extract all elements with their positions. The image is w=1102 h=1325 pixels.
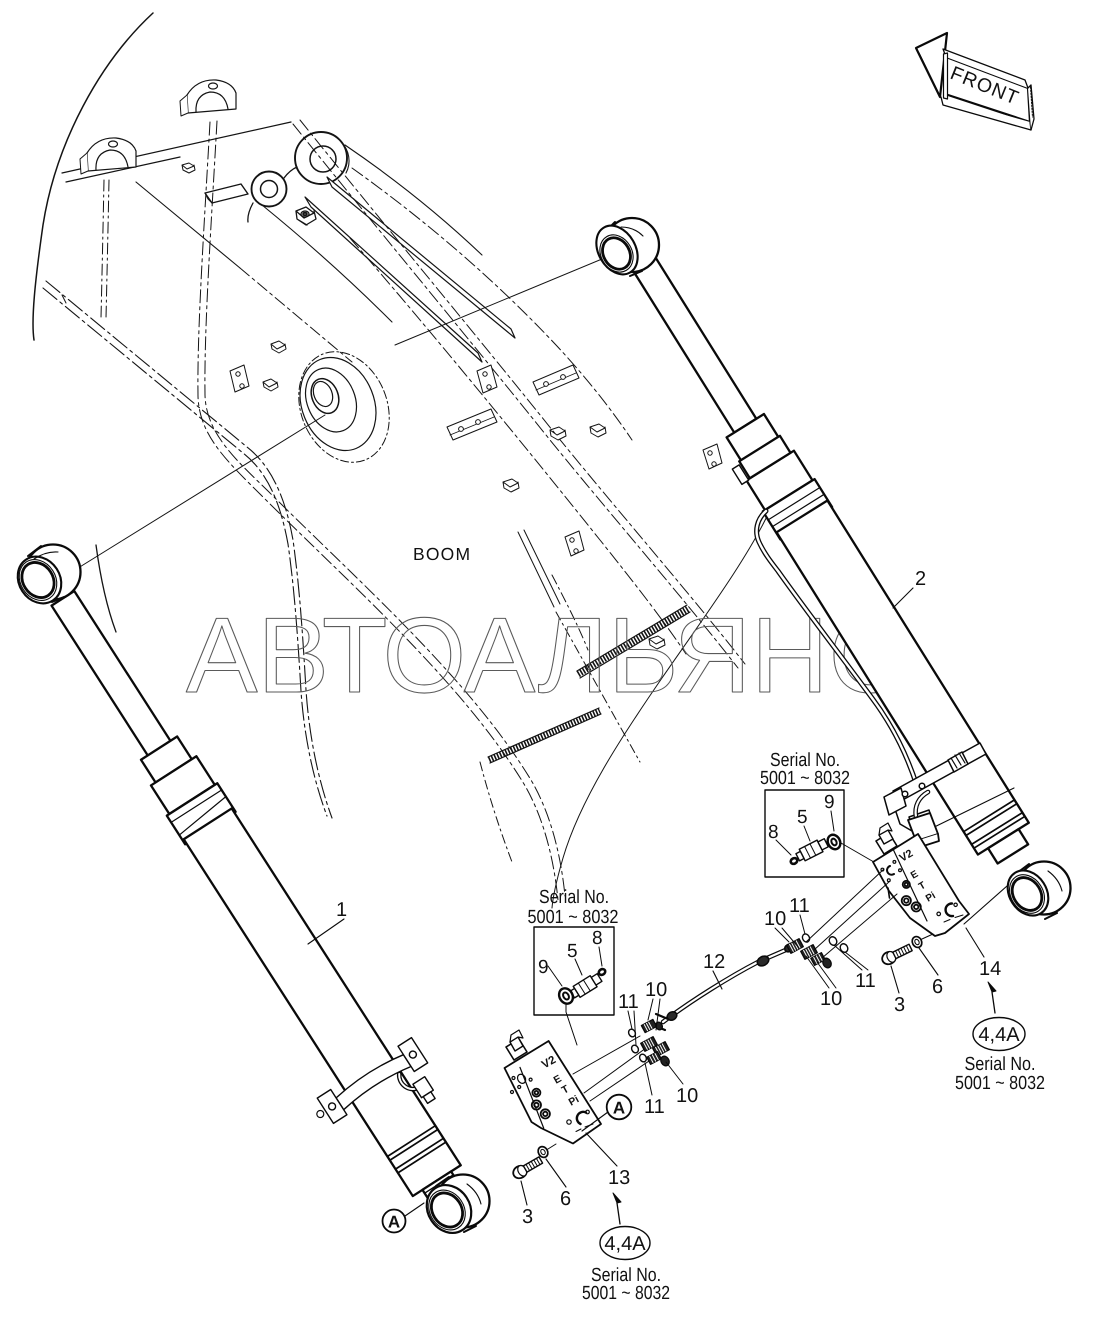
svg-text:13: 13 (608, 1167, 630, 1189)
svg-text:9: 9 (538, 957, 549, 978)
svg-text:12: 12 (703, 951, 725, 973)
svg-text:3: 3 (894, 994, 905, 1016)
svg-text:Serial No.: Serial No. (539, 887, 609, 908)
svg-text:14: 14 (979, 958, 1001, 980)
svg-text:11: 11 (789, 895, 810, 917)
svg-text:2: 2 (915, 568, 926, 590)
svg-text:10: 10 (820, 988, 842, 1010)
svg-text:5: 5 (797, 807, 808, 828)
svg-text:8: 8 (592, 928, 603, 949)
svg-text:10: 10 (645, 979, 667, 1001)
svg-text:9: 9 (824, 792, 835, 813)
svg-text:8: 8 (768, 822, 779, 843)
svg-text:5001 ~ 8032: 5001 ~ 8032 (760, 768, 850, 789)
svg-text:5001 ~ 8032: 5001 ~ 8032 (528, 907, 619, 928)
svg-text:6: 6 (560, 1188, 571, 1210)
svg-text:5001 ~ 8032: 5001 ~ 8032 (582, 1283, 670, 1304)
svg-text:Serial No.: Serial No. (965, 1054, 1036, 1075)
svg-text:11: 11 (855, 970, 876, 992)
svg-text:10: 10 (676, 1085, 698, 1107)
svg-text:АВТОАЛЬЯНС: АВТОАЛЬЯНС (186, 595, 906, 715)
svg-text:11: 11 (618, 991, 639, 1013)
svg-text:5: 5 (567, 941, 578, 962)
svg-text:5001 ~ 8032: 5001 ~ 8032 (955, 1073, 1045, 1094)
svg-text:BOOM: BOOM (413, 544, 471, 564)
svg-text:1: 1 (336, 899, 347, 921)
svg-text:A: A (388, 1213, 400, 1232)
svg-text:4,4A: 4,4A (604, 1233, 646, 1255)
svg-text:3: 3 (522, 1206, 533, 1228)
svg-text:11: 11 (644, 1096, 665, 1118)
svg-text:4,4A: 4,4A (978, 1024, 1020, 1046)
svg-text:10: 10 (764, 908, 786, 930)
svg-text:A: A (613, 1099, 625, 1118)
svg-text:6: 6 (932, 976, 943, 998)
